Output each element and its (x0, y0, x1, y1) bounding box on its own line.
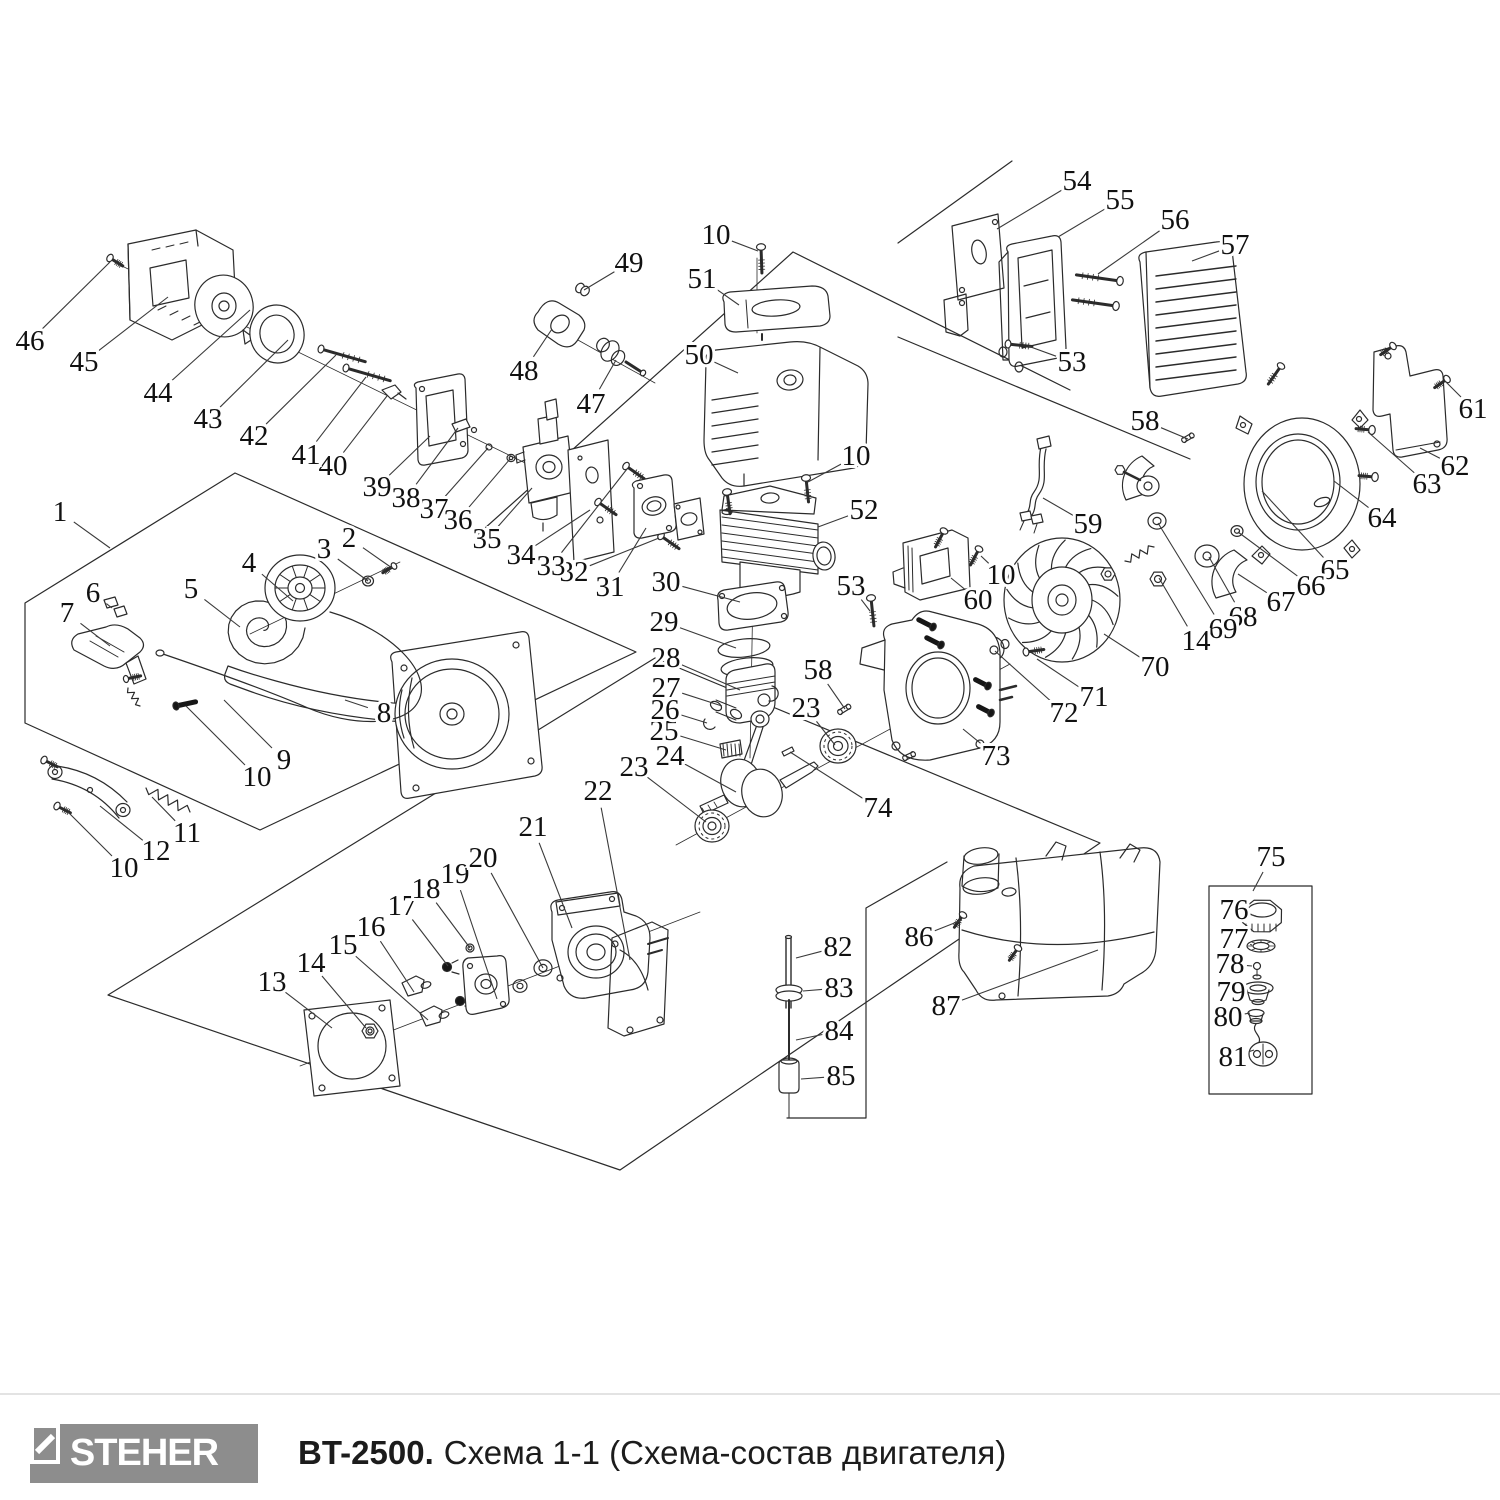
diagram-stage: 1234567891011121013141516171819202122232… (0, 0, 1500, 1500)
callout-41: 41 (292, 439, 321, 471)
leader-line-47 (599, 360, 616, 389)
callout-6: 6 (86, 577, 101, 609)
leader-line-69 (1158, 523, 1214, 615)
callout-11: 11 (173, 817, 201, 849)
callout-47: 47 (577, 388, 606, 420)
callout-43: 43 (194, 403, 223, 435)
leader-line-25 (680, 736, 726, 750)
leader-line-77 (1250, 944, 1252, 945)
callout-23: 23 (620, 751, 649, 783)
callout-86: 86 (905, 921, 934, 953)
callout-57: 57 (1221, 229, 1250, 261)
leader-line-58 (828, 684, 845, 709)
callout-2: 2 (342, 522, 357, 554)
callout-13: 13 (258, 966, 287, 998)
leader-line-1 (74, 522, 110, 548)
callout-9: 9 (277, 744, 292, 776)
callout-66: 66 (1297, 570, 1326, 602)
callout-14: 14 (297, 947, 327, 979)
callout-51: 51 (688, 263, 717, 295)
leader-line-75 (1253, 872, 1263, 891)
leader-line-54 (997, 190, 1062, 229)
callout-49: 49 (615, 247, 644, 279)
leader-line-10 (68, 812, 112, 856)
callout-53: 53 (1058, 346, 1087, 378)
callout-10: 10 (110, 852, 139, 884)
callout-30: 30 (652, 566, 681, 598)
callout-5: 5 (184, 573, 199, 605)
leader-line-10 (732, 241, 758, 251)
callout-76: 76 (1220, 894, 1249, 926)
leader-line-18 (436, 903, 470, 948)
leader-line-85 (801, 1077, 824, 1079)
leader-line-23 (648, 777, 706, 822)
leader-line-83 (803, 989, 822, 991)
callout-15: 15 (329, 929, 358, 961)
callout-40: 40 (319, 450, 348, 482)
steher-s-icon (30, 1424, 60, 1464)
callout-12: 12 (142, 835, 171, 867)
callout-29: 29 (650, 606, 679, 638)
callout-22: 22 (584, 775, 613, 807)
callout-83: 83 (825, 972, 854, 1004)
leader-line-2 (363, 548, 392, 568)
leader-line-26 (681, 715, 707, 723)
schema-caption: BT-2500.Схема 1-1 (Схема-состав двигател… (298, 1423, 1006, 1483)
callout-38: 38 (392, 482, 421, 514)
callout-55: 55 (1106, 184, 1135, 216)
leader-line-84 (796, 1034, 822, 1040)
footer: STEHER BT-2500.Схема 1-1 (Схема-состав д… (0, 1393, 1500, 1500)
leader-line-35 (498, 488, 532, 526)
leader-line-10 (186, 706, 245, 765)
schema-title: Схема 1-1 (Схема-состав двигателя) (444, 1434, 1007, 1472)
leader-line-31 (619, 528, 646, 572)
leader-line-58 (1161, 428, 1188, 439)
leader-line-55 (1058, 209, 1105, 237)
leader-line-9 (224, 700, 272, 748)
callout-45: 45 (70, 346, 99, 378)
callout-82: 82 (824, 931, 853, 963)
leader-line-67 (1238, 574, 1267, 593)
callout-72: 72 (1050, 697, 1079, 729)
leader-line-16 (380, 941, 414, 992)
callout-63: 63 (1413, 468, 1442, 500)
callout-16: 16 (357, 911, 386, 943)
callout-37: 37 (420, 493, 449, 525)
callout-58: 58 (804, 654, 833, 686)
callout-44: 44 (144, 377, 174, 409)
exploded-parts-diagram: 1234567891011121013141516171819202122232… (0, 0, 1500, 1500)
callout-3: 3 (317, 533, 332, 565)
callout-75: 75 (1257, 841, 1286, 873)
leader-line-36 (469, 459, 510, 507)
callout-73: 73 (982, 740, 1011, 772)
callout-10: 10 (243, 761, 272, 793)
callout-23: 23 (792, 692, 821, 724)
steher-logo: STEHER (30, 1424, 258, 1483)
callout-4: 4 (242, 547, 257, 579)
callout-54: 54 (1063, 165, 1093, 197)
callout-85: 85 (827, 1060, 856, 1092)
callout-87: 87 (932, 990, 961, 1022)
leader-line-29 (680, 628, 736, 648)
leader-line-41 (316, 377, 366, 442)
callout-39: 39 (363, 471, 392, 503)
leader-line-43 (220, 340, 288, 407)
callout-64: 64 (1368, 502, 1398, 534)
callout-35: 35 (473, 523, 502, 555)
callout-8: 8 (377, 697, 392, 729)
callout-10: 10 (702, 219, 731, 251)
leader-line-20 (491, 873, 543, 968)
leader-line-71 (1037, 659, 1080, 688)
callout-28: 28 (652, 642, 681, 674)
leader-line-11 (152, 797, 175, 821)
callout-70: 70 (1141, 651, 1170, 683)
callout-46: 46 (16, 325, 45, 357)
callout-80: 80 (1214, 1001, 1243, 1033)
callout-19: 19 (441, 858, 470, 890)
brand-name: STEHER (70, 1432, 218, 1475)
callout-31: 31 (596, 571, 625, 603)
callout-50: 50 (685, 339, 714, 371)
callout-58: 58 (1131, 405, 1160, 437)
callout-62: 62 (1441, 450, 1470, 482)
callout-74: 74 (864, 792, 894, 824)
callout-14: 14 (1182, 625, 1212, 657)
callout-60: 60 (964, 584, 993, 616)
model-number: BT-2500. (298, 1434, 434, 1472)
leader-line-70 (1104, 634, 1141, 658)
callout-33: 33 (537, 550, 566, 582)
callout-71: 71 (1080, 681, 1109, 713)
leader-line-14 (1159, 578, 1187, 626)
callout-7: 7 (60, 597, 75, 629)
leader-line-40 (343, 396, 387, 453)
leader-line-82 (796, 951, 822, 958)
callout-53: 53 (837, 570, 866, 602)
leader-line-46 (42, 262, 110, 329)
callout-69: 69 (1209, 613, 1238, 645)
callout-56: 56 (1161, 204, 1190, 236)
callout-34: 34 (507, 539, 537, 571)
leader-line-59 (1043, 498, 1073, 515)
callout-18: 18 (412, 873, 441, 905)
callout-59: 59 (1074, 508, 1103, 540)
leader-line-49 (584, 272, 614, 290)
callout-27: 27 (652, 672, 681, 704)
leader-line-52 (818, 516, 848, 527)
footer-divider (0, 1393, 1500, 1395)
callout-61: 61 (1459, 393, 1488, 425)
leader-line-42 (266, 355, 336, 424)
callout-52: 52 (850, 494, 879, 526)
leader-line-17 (412, 919, 448, 966)
callout-21: 21 (519, 811, 548, 843)
leader-line-3 (338, 559, 368, 581)
callout-84: 84 (825, 1015, 855, 1047)
callout-81: 81 (1219, 1041, 1248, 1073)
callout-10: 10 (842, 440, 871, 472)
callout-1: 1 (53, 496, 68, 528)
callout-42: 42 (240, 420, 269, 452)
callout-48: 48 (510, 355, 539, 387)
callout-67: 67 (1267, 586, 1296, 618)
callout-20: 20 (469, 842, 498, 874)
